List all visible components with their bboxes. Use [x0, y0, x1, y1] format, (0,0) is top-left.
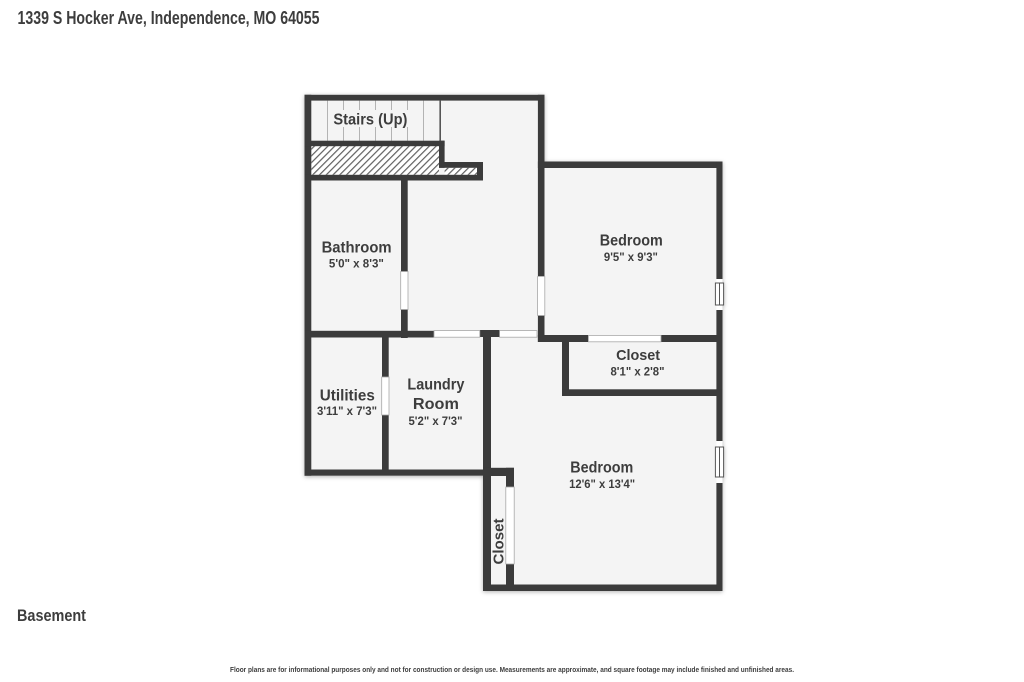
svg-text:1339 S Hocker Ave, Independenc: 1339 S Hocker Ave, Independence, MO 6405… — [18, 8, 320, 28]
svg-text:Floor plans are for informatio: Floor plans are for informational purpos… — [230, 665, 794, 674]
svg-text:Closet: Closet — [491, 518, 508, 564]
svg-text:Laundry: Laundry — [407, 377, 464, 394]
svg-text:Utilities: Utilities — [320, 388, 375, 405]
svg-text:8'1" x 2'8": 8'1" x 2'8" — [611, 367, 665, 379]
svg-text:12'6" x 13'4": 12'6" x 13'4" — [569, 479, 635, 491]
svg-text:5'2" x 7'3": 5'2" x 7'3" — [409, 416, 463, 428]
svg-text:5'0" x 8'3": 5'0" x 8'3" — [329, 259, 384, 271]
svg-text:Bedroom: Bedroom — [600, 233, 663, 250]
svg-text:Bedroom: Bedroom — [570, 460, 633, 477]
svg-text:Basement: Basement — [17, 606, 86, 625]
svg-text:Closet: Closet — [616, 347, 660, 364]
svg-text:Bathroom: Bathroom — [322, 240, 392, 257]
svg-text:Room: Room — [413, 396, 459, 413]
svg-text:9'5" x 9'3": 9'5" x 9'3" — [604, 252, 658, 264]
svg-text:Stairs (Up): Stairs (Up) — [333, 111, 407, 128]
svg-text:3'11" x 7'3": 3'11" x 7'3" — [317, 406, 377, 418]
